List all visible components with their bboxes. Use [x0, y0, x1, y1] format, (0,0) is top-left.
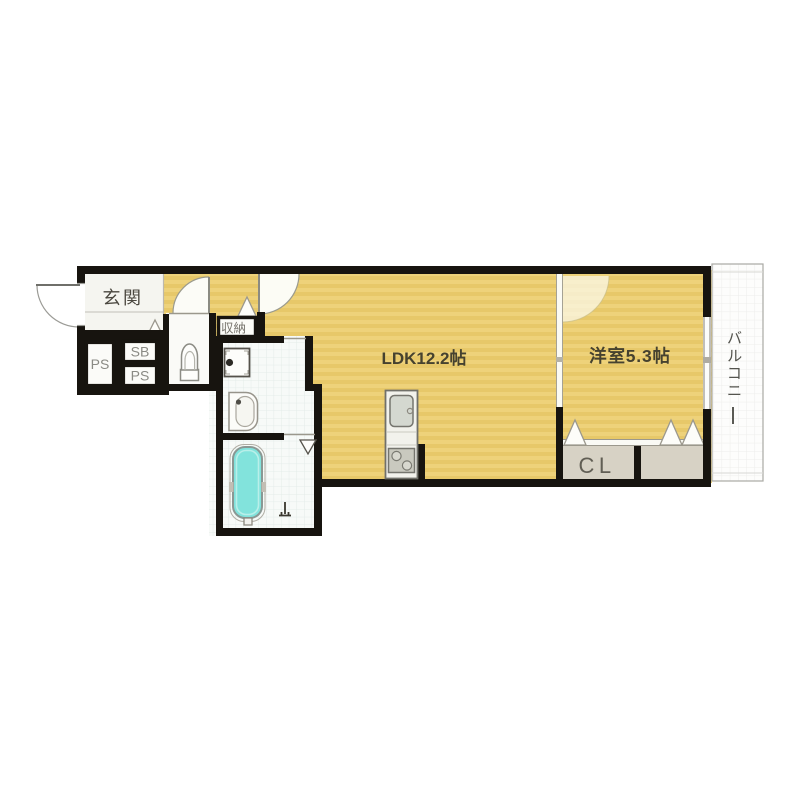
svg-text:LDK12.2帖: LDK12.2帖	[381, 348, 466, 368]
svg-text:玄関: 玄関	[103, 288, 144, 308]
svg-text:収納: 収納	[221, 322, 246, 336]
svg-text:バルコニ: バルコニ	[725, 330, 742, 400]
svg-text:PS: PS	[91, 356, 110, 372]
svg-text:CL: CL	[578, 453, 615, 478]
svg-text:SB: SB	[131, 344, 150, 360]
svg-text:洋室5.3帖: 洋室5.3帖	[589, 346, 671, 366]
svg-text:PS: PS	[131, 368, 150, 384]
